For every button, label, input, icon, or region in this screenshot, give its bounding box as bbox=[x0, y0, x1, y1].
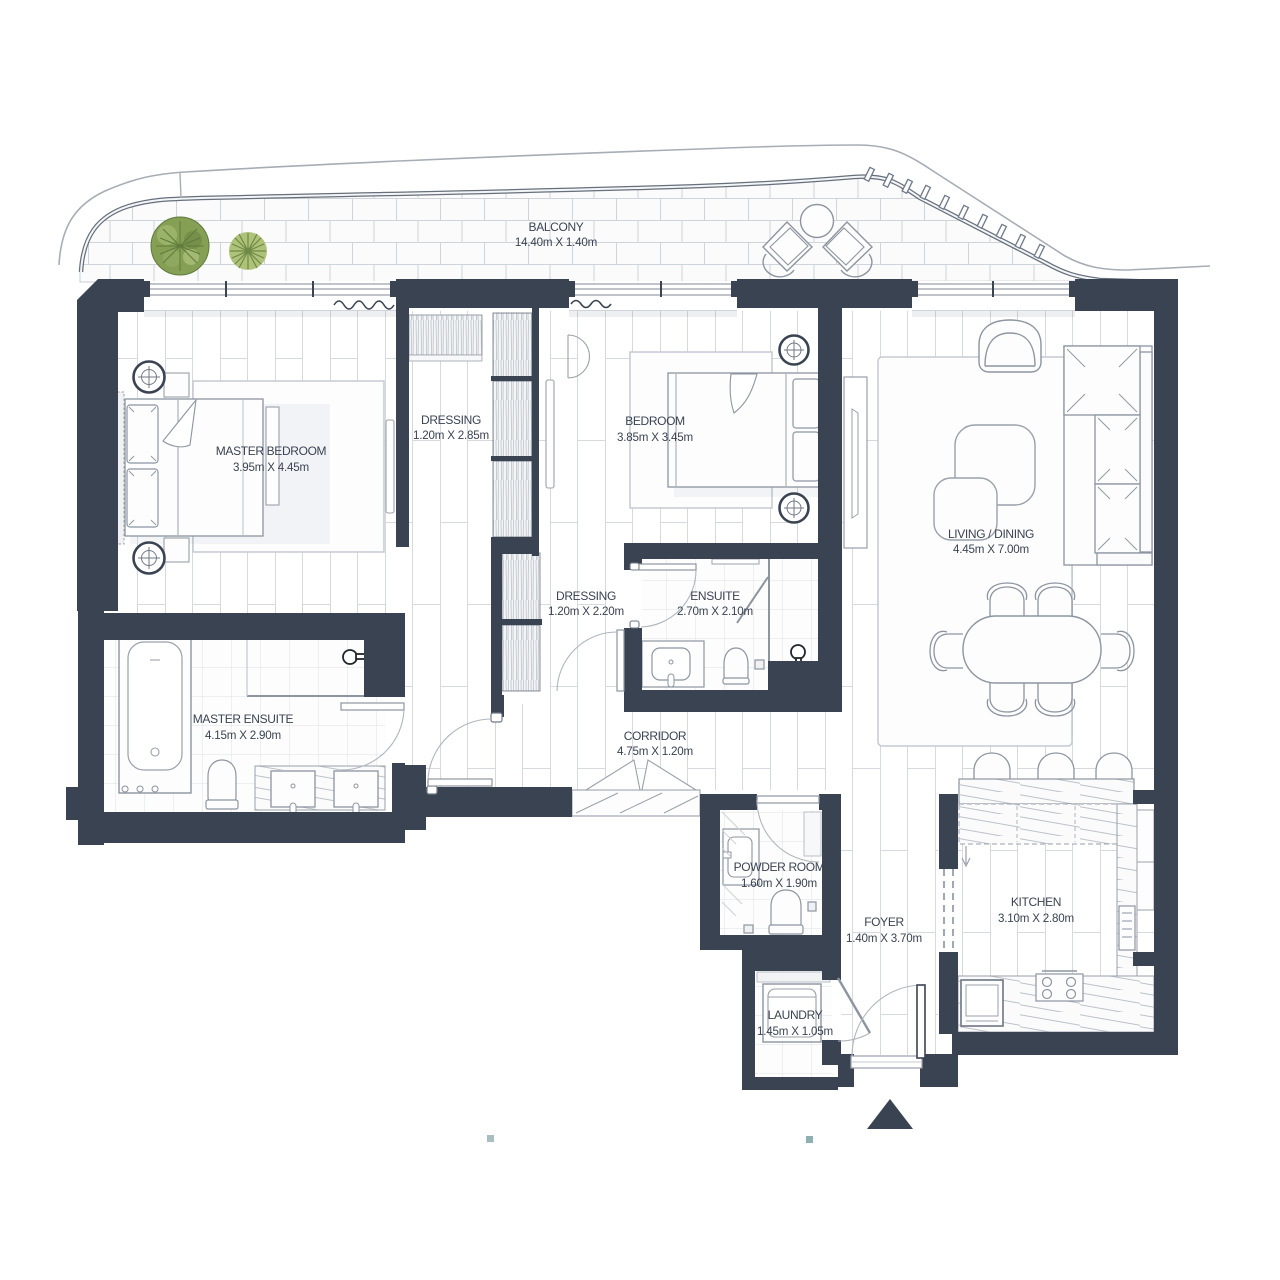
svg-text:BEDROOM: BEDROOM bbox=[625, 414, 685, 428]
svg-text:BALCONY: BALCONY bbox=[529, 220, 584, 234]
svg-text:3.95m X 4.45m: 3.95m X 4.45m bbox=[233, 461, 309, 474]
svg-text:3.10m X 2.80m: 3.10m X 2.80m bbox=[998, 912, 1074, 925]
svg-text:14.40m X 1.40m: 14.40m X 1.40m bbox=[515, 236, 597, 249]
svg-text:1.60m X 1.90m: 1.60m X 1.90m bbox=[741, 877, 817, 890]
svg-text:3.85m X 3.45m: 3.85m X 3.45m bbox=[617, 431, 693, 444]
svg-text:POWDER ROOM: POWDER ROOM bbox=[734, 860, 825, 874]
svg-text:MASTER ENSUITE: MASTER ENSUITE bbox=[193, 712, 294, 726]
svg-text:DRESSING: DRESSING bbox=[421, 413, 481, 427]
svg-text:4.75m X 1.20m: 4.75m X 1.20m bbox=[617, 745, 693, 758]
svg-text:1.20m X 2.85m: 1.20m X 2.85m bbox=[413, 429, 489, 442]
svg-text:1.40m X 3.70m: 1.40m X 3.70m bbox=[846, 932, 922, 945]
svg-text:1.20m X 2.20m: 1.20m X 2.20m bbox=[548, 605, 624, 618]
svg-text:4.45m X 7.00m: 4.45m X 7.00m bbox=[953, 543, 1029, 556]
svg-text:CORRIDOR: CORRIDOR bbox=[624, 729, 687, 743]
svg-text:LAUNDRY: LAUNDRY bbox=[768, 1008, 823, 1022]
svg-text:FOYER: FOYER bbox=[864, 915, 904, 929]
svg-text:DRESSING: DRESSING bbox=[556, 589, 616, 603]
svg-text:LIVING / DINING: LIVING / DINING bbox=[948, 527, 1034, 541]
svg-text:ENSUITE: ENSUITE bbox=[690, 589, 740, 603]
svg-text:4.15m X 2.90m: 4.15m X 2.90m bbox=[205, 729, 281, 742]
svg-text:MASTER BEDROOM: MASTER BEDROOM bbox=[216, 444, 327, 458]
svg-text:KITCHEN: KITCHEN bbox=[1011, 895, 1061, 909]
svg-text:1.45m X 1.05m: 1.45m X 1.05m bbox=[757, 1025, 833, 1038]
svg-text:2.70m X 2.10m: 2.70m X 2.10m bbox=[677, 605, 753, 618]
